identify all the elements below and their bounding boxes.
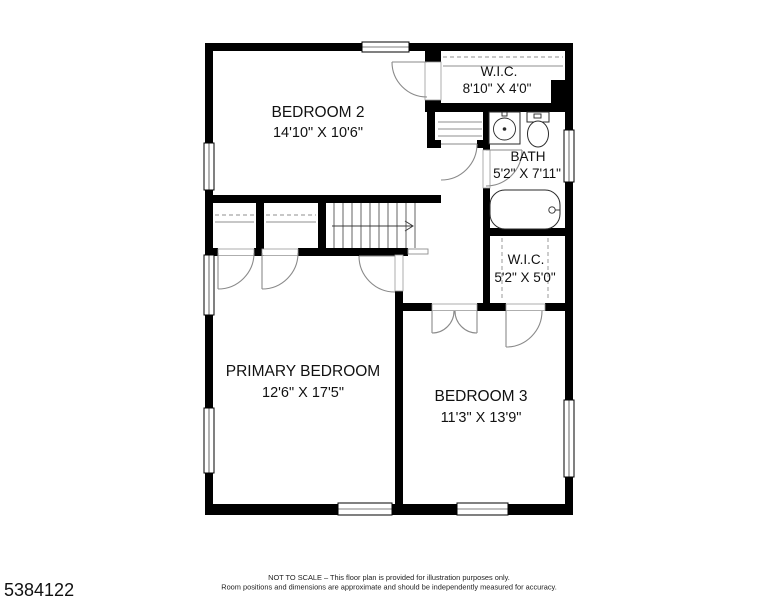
window-bedroom3-bottom [457,503,508,515]
staircase [332,203,428,254]
bath-label: BATH [510,149,545,164]
bedroom2-closet-door [392,62,427,97]
window-bedroom2-left [204,143,214,190]
toilet-icon [527,112,549,147]
wic2-dims: 5'2" X 5'0" [494,270,555,285]
bath-dims: 5'2" X 7'11" [493,166,561,181]
stair-railing [408,249,428,254]
listing-id: 5384122 [4,580,74,600]
disclaimer-line1: NOT TO SCALE – This floor plan is provid… [268,573,510,582]
linen-closet-door [441,144,477,180]
window-bath-right [564,130,574,182]
closet-right [266,215,316,222]
footer: 5384122 NOT TO SCALE – This floor plan i… [4,573,557,600]
disclaimer-line2: Room positions and dimensions are approx… [221,583,557,592]
primary-bedroom-door [359,256,395,292]
bedroom3-double-door [432,311,477,333]
bedroom3-dims: 11'3" X 13'9" [441,410,522,426]
window-primary-left-lower [204,408,214,473]
window-primary-left-upper [204,255,214,315]
bathtub-icon [490,190,560,229]
floor-plan-page: BEDROOM 2 14'10" X 10'6" W.I.C. 8'10" X … [0,0,776,600]
stair-direction-arrow-icon [332,221,413,231]
wic1-dims: 8'10" X 4'0" [463,81,532,96]
linen-closet-shelves [438,122,482,136]
closet-left [215,215,254,222]
bedroom2-label: BEDROOM 2 [271,104,364,121]
wic2-label: W.I.C. [508,252,545,267]
bedroom2-dims: 14'10" X 10'6" [273,125,363,141]
closet-left-door [218,253,254,289]
primary-bedroom-dims: 12'6" X 17'5" [262,385,344,401]
closet-right-door [262,253,298,289]
window-bedroom2-top [362,42,409,52]
wic2-door [506,311,542,347]
wic1-label: W.I.C. [481,64,518,79]
bedroom3-label: BEDROOM 3 [434,388,527,405]
floor-plan-drawing: BEDROOM 2 14'10" X 10'6" W.I.C. 8'10" X … [0,0,776,600]
sink-vanity-icon [489,112,520,144]
primary-bedroom-label: PRIMARY BEDROOM [226,363,380,380]
window-bedroom3-right [564,400,574,477]
window-primary-bottom [338,503,392,515]
